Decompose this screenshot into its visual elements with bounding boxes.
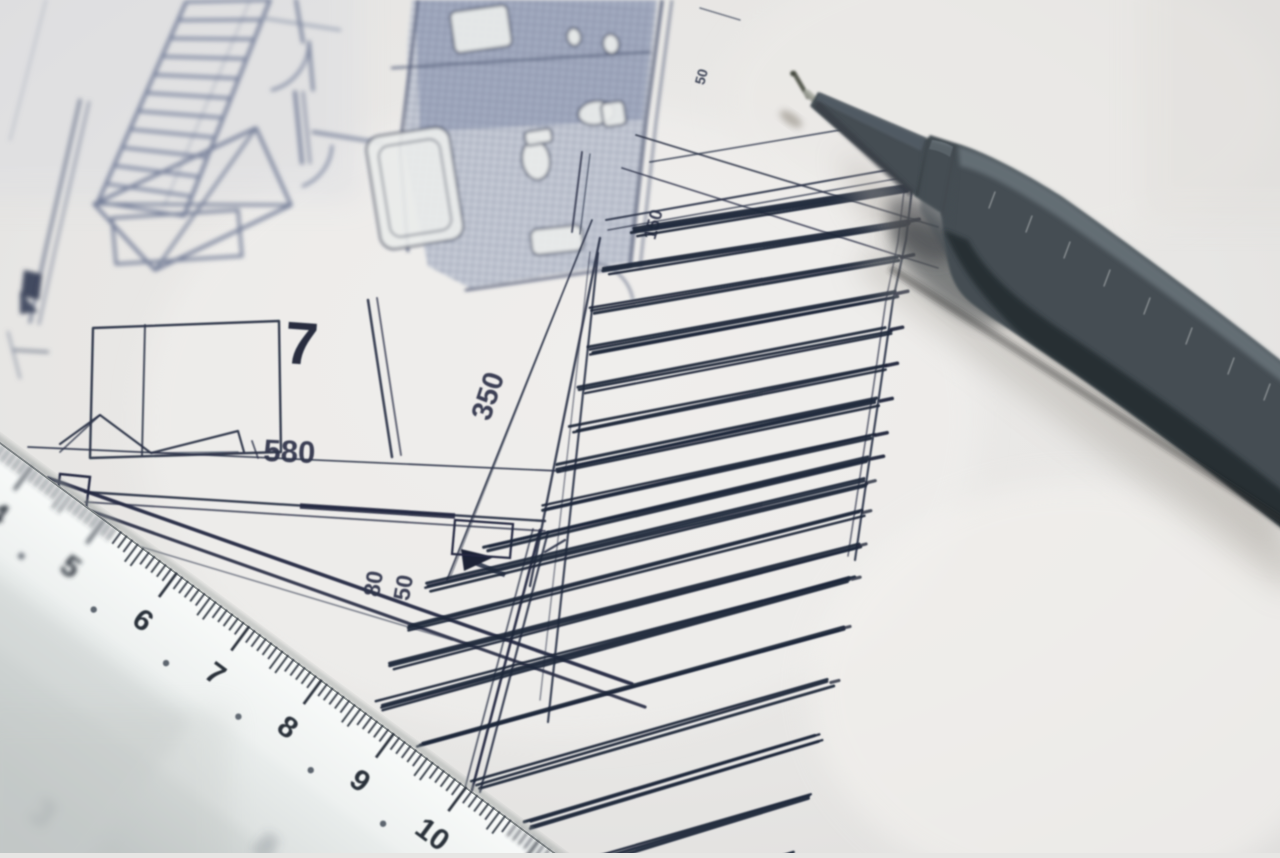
svg-text:80: 80 bbox=[358, 569, 388, 599]
svg-text:7: 7 bbox=[282, 309, 320, 378]
svg-text:580: 580 bbox=[263, 433, 316, 470]
svg-text:50: 50 bbox=[388, 573, 418, 603]
